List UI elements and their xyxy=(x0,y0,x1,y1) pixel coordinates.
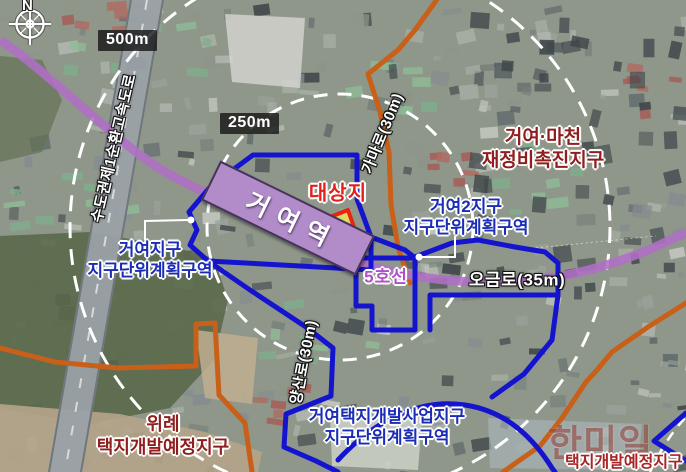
district-label-taekji-east: 택지개발예정지구 xyxy=(565,448,683,472)
leader-dot-west xyxy=(188,217,195,224)
leader-dot-east xyxy=(416,254,423,261)
compass-north-label: N xyxy=(22,0,33,14)
planning-map: N 500m 250m 수도권제1순환고속도로 가마로(30m) 양산로(30m… xyxy=(0,0,686,472)
